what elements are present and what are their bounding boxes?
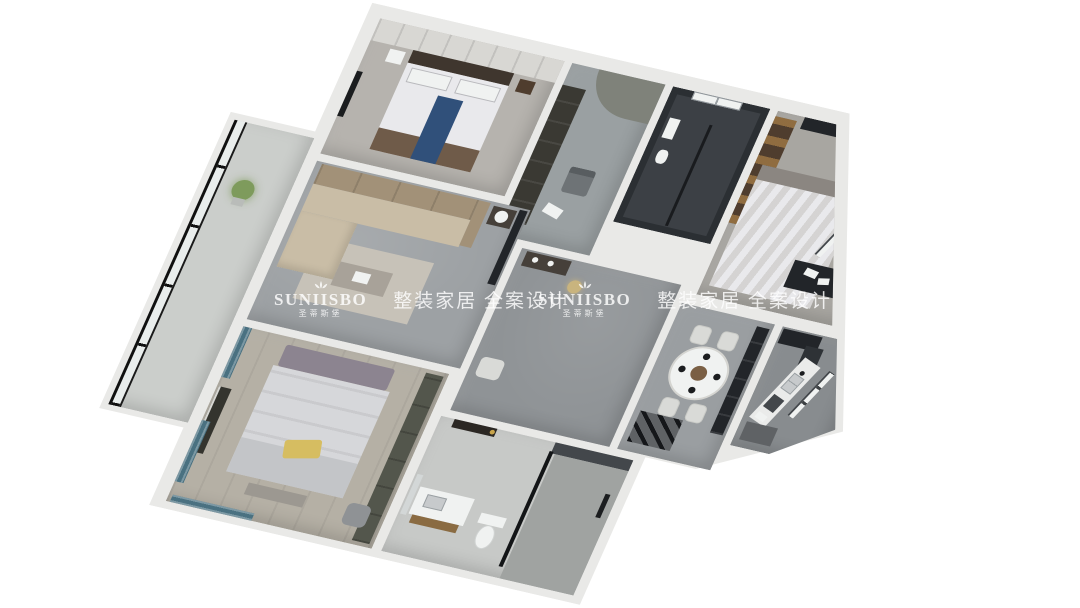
brand-name-cn: 圣蒂斯堡 bbox=[538, 310, 631, 318]
plant-pot bbox=[230, 197, 245, 207]
paper bbox=[542, 202, 564, 219]
brand-name: SUNIISBO bbox=[538, 291, 631, 308]
floorplan-render: SUNIISBO 圣蒂斯堡 整装家居 全案设计 SUNIISBO 圣蒂斯堡 整装… bbox=[0, 0, 1080, 608]
brand-name-cn: 圣蒂斯堡 bbox=[274, 310, 367, 318]
toilet-icon bbox=[471, 523, 499, 550]
laurel-crest-icon bbox=[575, 281, 595, 290]
dining-chair bbox=[683, 402, 708, 424]
dining-chair bbox=[715, 330, 740, 352]
watermark: SUNIISBO 圣蒂斯堡 整装家居 全案设计 bbox=[538, 281, 832, 318]
armchair bbox=[474, 356, 506, 381]
floor-grille bbox=[627, 410, 683, 451]
dining-chair bbox=[688, 324, 713, 346]
stove-icon bbox=[763, 394, 784, 413]
yellow-pillow bbox=[282, 440, 322, 459]
nightstand bbox=[385, 49, 406, 65]
vanity bbox=[661, 118, 680, 140]
watermark: SUNIISBO 圣蒂斯堡 整装家居 全案设计 bbox=[274, 281, 568, 318]
laurel-crest-icon bbox=[311, 281, 331, 290]
toilet-icon bbox=[653, 149, 670, 165]
chair bbox=[560, 166, 596, 197]
dish bbox=[754, 411, 767, 422]
tv-panel bbox=[800, 117, 900, 151]
floor-mat bbox=[739, 421, 778, 446]
brand-tagline: 整装家居 全案设计 bbox=[657, 286, 832, 313]
shower-glass bbox=[665, 125, 713, 226]
brand-logo: SUNIISBO 圣蒂斯堡 bbox=[274, 281, 367, 318]
brand-name: SUNIISBO bbox=[274, 291, 367, 308]
brand-logo: SUNIISBO 圣蒂斯堡 bbox=[538, 281, 631, 318]
nightstand bbox=[515, 79, 536, 95]
